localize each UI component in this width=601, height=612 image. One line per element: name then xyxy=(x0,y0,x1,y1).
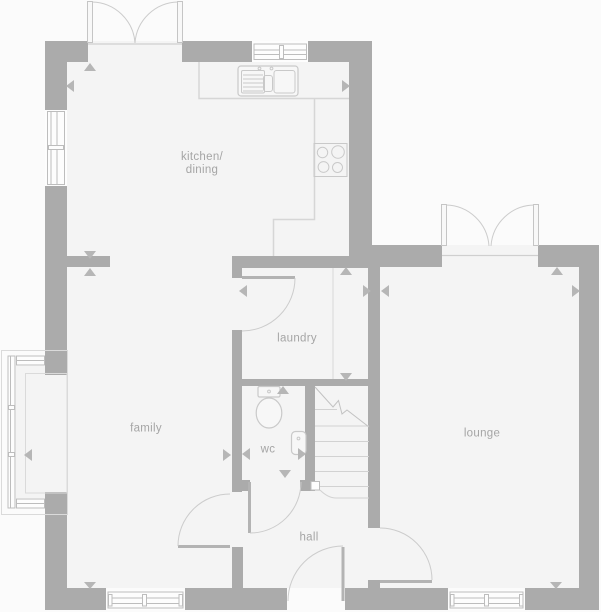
family-hall-door xyxy=(178,494,230,547)
sink xyxy=(238,66,298,96)
laundry-door xyxy=(242,278,295,332)
lounge-label: lounge xyxy=(464,428,500,441)
hall-label: hall xyxy=(299,532,318,545)
front-door xyxy=(288,546,343,601)
kitchen-french-doors xyxy=(88,2,183,45)
wc-door xyxy=(250,482,302,533)
stairs xyxy=(311,387,369,498)
floor-plan: kitchen/ dining family laundry wc hall l… xyxy=(0,0,601,612)
wc-label: wc xyxy=(261,444,276,457)
plan-linework xyxy=(0,0,601,612)
hob xyxy=(314,144,347,177)
dimension-arrows xyxy=(24,63,580,589)
kitchen-dining-label-line1: kitchen/ xyxy=(181,151,223,164)
bay-window xyxy=(2,351,68,515)
hall-lounge-door xyxy=(380,528,432,582)
window-lounge-bottom xyxy=(448,590,525,610)
laundry-label: laundry xyxy=(277,333,317,346)
kitchen-dining-label: kitchen/ dining xyxy=(181,151,223,177)
lounge-french-doors xyxy=(442,205,539,256)
kitchen-dining-label-line2: dining xyxy=(181,164,223,177)
family-label: family xyxy=(130,423,162,436)
window-kitchen-top xyxy=(252,41,308,62)
newel-post xyxy=(311,482,320,491)
window-family-bottom xyxy=(106,590,185,610)
window-left xyxy=(45,110,67,186)
